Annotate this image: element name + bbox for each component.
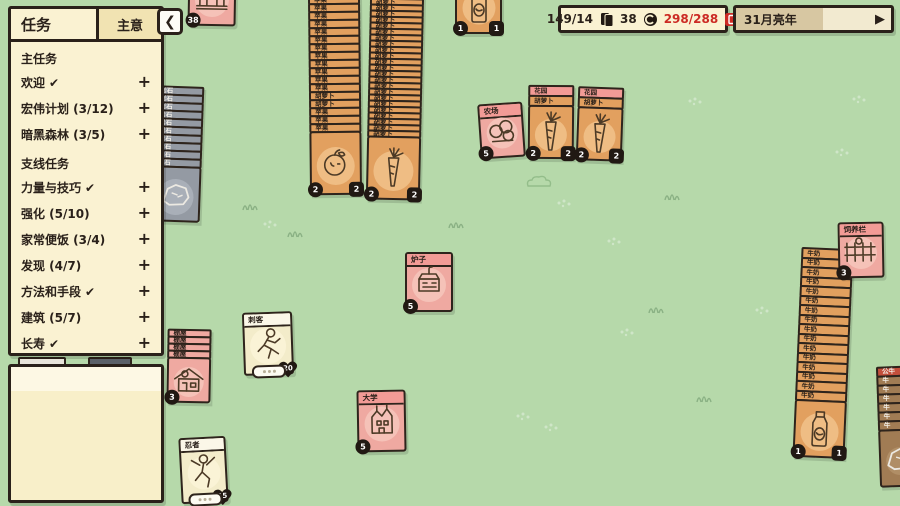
speckle-decor [834, 142, 850, 161]
treasury-card[interactable]: 38 [187, 0, 236, 26]
collapse-panel-button[interactable]: ❮ [157, 8, 183, 35]
quest-expand-button[interactable]: + [138, 74, 151, 90]
quest-expand-button[interactable]: + [138, 205, 151, 221]
play-speed-button[interactable]: ▶ [875, 8, 885, 30]
card-limit-count: 298/288 [664, 12, 718, 26]
play-icon: ▶ [875, 12, 885, 27]
quest-item: 暗黑森林 (3/5)+ [11, 121, 161, 147]
quest-item-label: 强化 (5/10) [21, 205, 90, 222]
pen-icon [843, 235, 880, 270]
quest-expand-button[interactable]: + [138, 335, 151, 351]
coin-icon [643, 12, 658, 27]
assassin-card[interactable]: 刺客20 [242, 311, 294, 376]
food-value-badge: 1 [831, 445, 847, 461]
quest-item: 力量与技巧✔+ [11, 174, 161, 200]
garden-carrot-stack-2-bottom-card[interactable]: 22 [576, 106, 624, 162]
quest-item-label: 发现 (4/7) [21, 257, 81, 274]
coin-value-badge: 3 [836, 265, 851, 280]
breeding-pen-card[interactable]: 饲养栏3 [838, 222, 885, 279]
bush-decor [524, 174, 554, 194]
grass-tuft-decor [286, 223, 304, 242]
grass-tuft-decor [447, 214, 465, 233]
milk-icon [466, 0, 492, 28]
coin-value-badge: 3 [164, 390, 179, 405]
quest-expand-button[interactable]: + [138, 283, 151, 299]
quest-item-label: 暗黑森林 (3/5) [21, 126, 105, 143]
university-icon [363, 403, 400, 444]
quest-expand-button[interactable]: + [138, 231, 151, 247]
cow-stack[interactable]: 公牛牛牛牛牛牛牛 [876, 365, 900, 487]
coin-value-badge: 1 [790, 444, 806, 460]
tab-ideas[interactable]: 主意 [96, 9, 161, 39]
info-panel-empty [8, 364, 164, 503]
quest-item-label: 欢迎✔ [21, 74, 59, 91]
check-icon: ✔ [85, 181, 95, 195]
quest-section-header: 支线任务 [11, 147, 161, 174]
grass-tuft-decor [647, 299, 665, 318]
quest-list: 主任务欢迎✔+宏伟计划 (3/12)+暗黑森林 (3/5)+支线任务力量与技巧✔… [11, 42, 161, 356]
quest-expand-button[interactable]: + [138, 309, 151, 325]
carrot-icon [378, 146, 409, 195]
quest-item: 方法和手段✔+ [11, 278, 161, 304]
milk-card-top[interactable]: 牛奶11 [455, 0, 502, 34]
coin-value-badge: 5 [355, 439, 370, 454]
ninja-card[interactable]: 忍者15 [178, 436, 228, 504]
food-value-badge: 1 [489, 21, 504, 36]
garden-carrot-stack-1-bottom-card[interactable]: 22 [528, 105, 574, 159]
speckle-decor [262, 214, 278, 233]
speckle-decor [687, 91, 703, 110]
quest-expand-button[interactable]: + [138, 179, 151, 195]
speckle-decor [754, 300, 770, 319]
quest-item-label: 宏伟计划 (3/12) [21, 100, 114, 117]
speckle-decor [515, 406, 531, 425]
quest-panel-header: 任务 主意 [11, 9, 161, 42]
food-value-badge: 2 [349, 182, 364, 197]
work-timer-pill [188, 492, 223, 506]
quest-expand-button[interactable]: + [138, 257, 151, 273]
quest-item: 长寿✔+ [11, 330, 161, 356]
farm-card[interactable]: 农场5 [477, 101, 526, 159]
quest-item-label: 长寿✔ [21, 335, 59, 352]
moon-timer-panel: 31月亮年 ▶ [733, 5, 894, 33]
quest-item: 强化 (5/10)+ [11, 200, 161, 226]
quest-item-label: 建筑 (5/7) [21, 309, 81, 326]
milk-icon [806, 410, 834, 453]
carrot-stack[interactable]: 胡萝卜胡萝卜胡萝卜胡萝卜胡萝卜胡萝卜胡萝卜胡萝卜胡萝卜胡萝卜胡萝卜胡萝卜胡萝卜胡… [366, 0, 424, 201]
grass-tuft-decor [663, 186, 681, 205]
quest-panel: 任务 主意 主任务欢迎✔+宏伟计划 (3/12)+暗黑森林 (3/5)+支线任务… [8, 6, 164, 356]
quest-item-label: 力量与技巧✔ [21, 179, 95, 196]
coin-value-badge: 5 [478, 146, 494, 162]
speckle-decor [556, 193, 572, 212]
speckle-decor [619, 322, 635, 341]
coin-value-badge: 2 [364, 186, 379, 201]
info-panel-header-strip [11, 367, 161, 391]
quest-panel-title: 任务 [11, 9, 96, 39]
quest-item: 欢迎✔+ [11, 69, 161, 95]
apple-stack-bottom-card[interactable]: 22 [309, 131, 362, 196]
speckle-decor [606, 231, 622, 250]
shed-stack-bottom-card[interactable]: 3 [166, 357, 211, 404]
coin-value-badge: 2 [574, 147, 590, 163]
coin-value-badge: 1 [453, 21, 468, 36]
game-screen: 苹果苹果苹果苹果苹果苹果苹果苹果苹果苹果苹果苹果胡萝卜胡萝卜苹果苹果苹果22胡萝… [0, 0, 900, 506]
resource-counters-panel: 149/14 38 298/288 [558, 5, 728, 33]
grass-tuft-decor [695, 388, 713, 407]
moon-date-label: 31月亮年 [744, 8, 797, 30]
apple-icon [319, 146, 353, 184]
carrot-stack-bottom-card[interactable]: 22 [366, 135, 421, 200]
card-count: 149/14 [547, 12, 593, 26]
food-value-badge: 2 [407, 187, 422, 202]
coin-value-badge: 38 [185, 13, 200, 28]
quest-item: 建筑 (5/7)+ [11, 304, 161, 330]
quest-item-label: 家常便饭 (3/4) [21, 231, 105, 248]
milk-stack-bottom-card[interactable]: 11 [792, 399, 846, 459]
rock-icon [882, 443, 900, 478]
quest-expand-button[interactable]: + [138, 100, 151, 116]
work-timer-pill [252, 364, 286, 378]
check-icon: ✔ [49, 337, 59, 351]
garden-carrot-stack-1[interactable]: 花园胡萝卜22 [528, 85, 575, 159]
speckle-decor [851, 89, 867, 108]
university-card[interactable]: 大学5 [356, 390, 406, 453]
stove-card[interactable]: 炉子5 [405, 252, 453, 312]
quest-section-header: 主任务 [11, 42, 161, 69]
cards-icon [599, 12, 614, 27]
coin-value-badge: 2 [526, 146, 541, 161]
coin-value-badge: 5 [403, 299, 418, 314]
quest-item: 家常便饭 (3/4)+ [11, 226, 161, 252]
check-icon: ✔ [49, 76, 59, 90]
grass-tuft-decor [241, 196, 259, 215]
quest-item: 发现 (4/7)+ [11, 252, 161, 278]
apple-stack[interactable]: 苹果苹果苹果苹果苹果苹果苹果苹果苹果苹果苹果苹果胡萝卜胡萝卜苹果苹果苹果22 [308, 0, 362, 195]
cow-stack-bottom-card[interactable] [878, 428, 900, 487]
stove-icon [412, 265, 446, 303]
quest-expand-button[interactable]: + [138, 126, 151, 142]
speckle-decor [543, 417, 559, 436]
coin-count: 38 [620, 12, 637, 26]
garden-carrot-stack-2[interactable]: 花园胡萝卜22 [576, 86, 625, 162]
quest-item-label: 方法和手段✔ [21, 283, 95, 300]
quest-item: 宏伟计划 (3/12)+ [11, 95, 161, 121]
shed-stack[interactable]: 棚屋棚屋棚屋棚屋3 [166, 329, 211, 404]
coin-value-badge: 2 [308, 182, 323, 197]
check-icon: ✔ [85, 285, 95, 299]
chevron-left-icon: ❮ [164, 14, 176, 30]
food-value-badge: 2 [609, 148, 625, 164]
